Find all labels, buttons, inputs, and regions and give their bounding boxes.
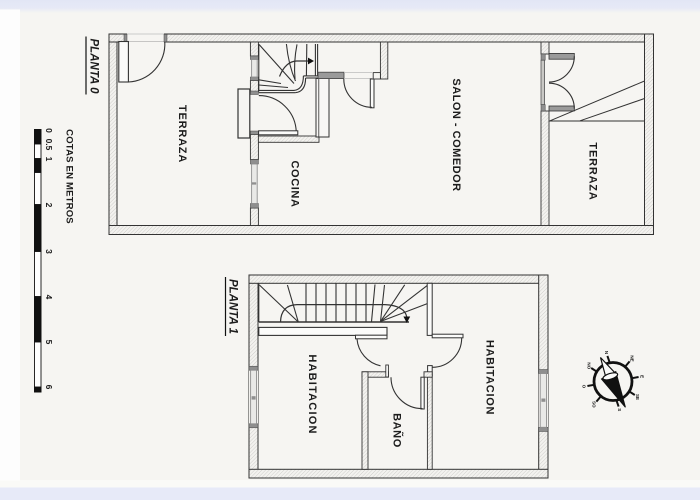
svg-text:O: O [582, 385, 587, 389]
svg-text:0.5: 0.5 [44, 139, 54, 151]
svg-text:COTAS EN METROS: COTAS EN METROS [64, 129, 75, 224]
svg-text:HABITACION: HABITACION [484, 340, 496, 415]
svg-text:SE: SE [635, 394, 640, 400]
svg-text:NE: NE [630, 355, 635, 361]
svg-text:TERRAZA: TERRAZA [176, 105, 188, 163]
svg-text:E: E [639, 375, 644, 378]
svg-text:0: 0 [44, 128, 54, 133]
svg-text:COCINA: COCINA [289, 161, 301, 208]
svg-text:6: 6 [44, 385, 54, 390]
svg-text:BAÑO: BAÑO [391, 413, 404, 448]
svg-text:1: 1 [44, 157, 54, 162]
svg-text:NO: NO [586, 362, 591, 369]
svg-text:PLANTA 0: PLANTA 0 [88, 39, 100, 95]
svg-text:4: 4 [44, 295, 54, 300]
svg-text:PLANTA 1: PLANTA 1 [227, 279, 239, 334]
svg-text:3: 3 [44, 249, 54, 254]
svg-text:HABITACION: HABITACION [306, 354, 318, 434]
svg-text:S: S [617, 408, 622, 411]
svg-text:SALON - COMEDOR: SALON - COMEDOR [450, 78, 462, 191]
svg-text:SO: SO [592, 401, 597, 408]
svg-text:N: N [604, 351, 609, 354]
svg-text:TERRAZA: TERRAZA [587, 142, 599, 200]
svg-text:2: 2 [44, 203, 54, 208]
svg-text:5: 5 [44, 340, 54, 345]
